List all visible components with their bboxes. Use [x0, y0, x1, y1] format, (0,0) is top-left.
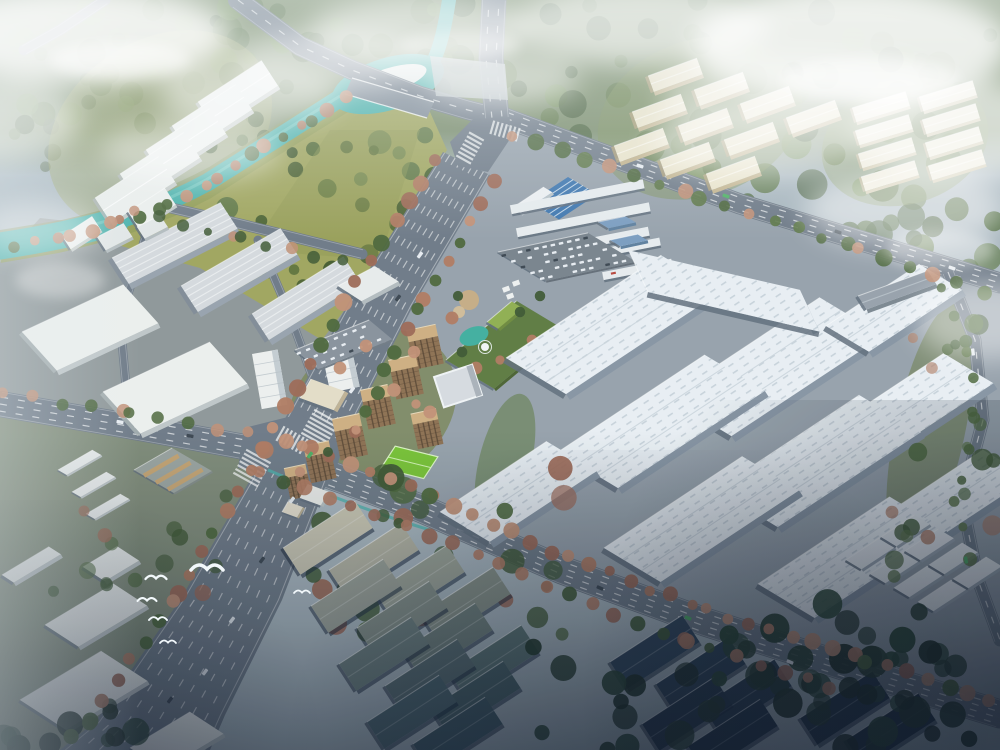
cloud-wisp — [15, 262, 105, 298]
cloud-wisp — [400, 31, 520, 59]
cloud-wisp — [885, 230, 995, 270]
cloud — [230, 30, 430, 90]
cloud — [420, 54, 580, 106]
cloud-wisp — [780, 58, 960, 102]
aerial-industrial-park-rendering — [0, 0, 1000, 750]
cloud-wisp — [50, 42, 190, 78]
cloud — [100, 120, 280, 180]
rendering-stage — [0, 0, 1000, 750]
